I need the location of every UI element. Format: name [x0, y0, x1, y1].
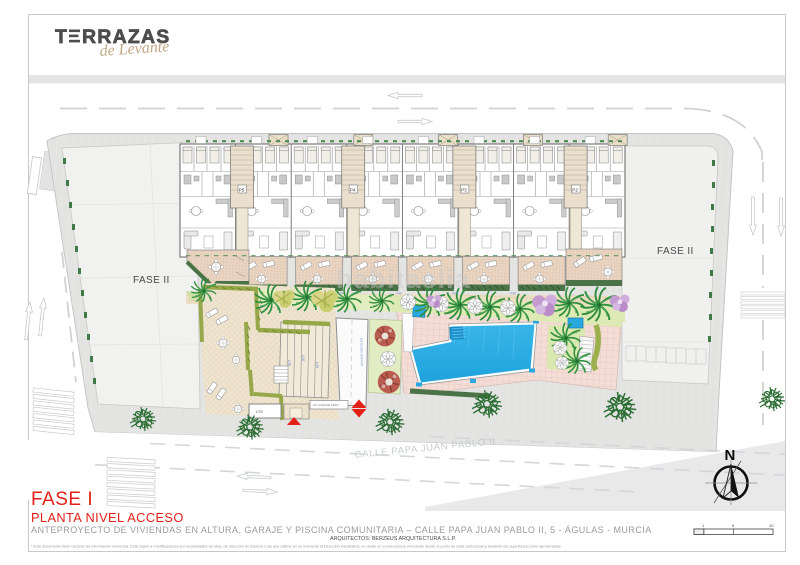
svg-text:10: 10: [769, 523, 774, 528]
svg-text:P4: P4: [350, 188, 356, 193]
svg-text:P5: P5: [239, 188, 245, 193]
svg-text:FASE II: FASE II: [657, 246, 694, 257]
svg-text:N: N: [725, 447, 736, 464]
svg-text:P2: P2: [572, 188, 578, 193]
svg-text:1,50: 1,50: [315, 362, 319, 368]
svg-text:P3: P3: [461, 188, 467, 193]
svg-text:LTE: LTE: [256, 409, 263, 414]
svg-text:FASE I: FASE I: [31, 489, 93, 510]
svg-text:ANTEPROYECTO DE VIVIENDAS EN A: ANTEPROYECTO DE VIVIENDAS EN ALTURA, GAR…: [31, 525, 652, 535]
svg-text:PLANTA NIVEL ACCESO: PLANTA NIVEL ACCESO: [31, 510, 184, 525]
svg-text:FASE II: FASE II: [133, 275, 170, 286]
svg-text:ARQUITECTOS: BERZEUS ARQU: ARQUITECTOS: BERZEUS ARQUITECTURA S.L.P.: [330, 536, 456, 542]
svg-text:CC GARAJE AFPA: CC GARAJE AFPA: [313, 403, 338, 407]
svg-text:4,95: 4,95: [510, 291, 516, 295]
svg-text:1,50: 1,50: [287, 360, 291, 366]
svg-text:1,50: 1,50: [301, 355, 305, 361]
svg-text:habitaclia: habitaclia: [336, 264, 471, 294]
svg-text:T: T: [55, 26, 68, 48]
svg-text:* Este documento tiene carácte: * Este documento tiene carácter de infor…: [31, 545, 562, 549]
